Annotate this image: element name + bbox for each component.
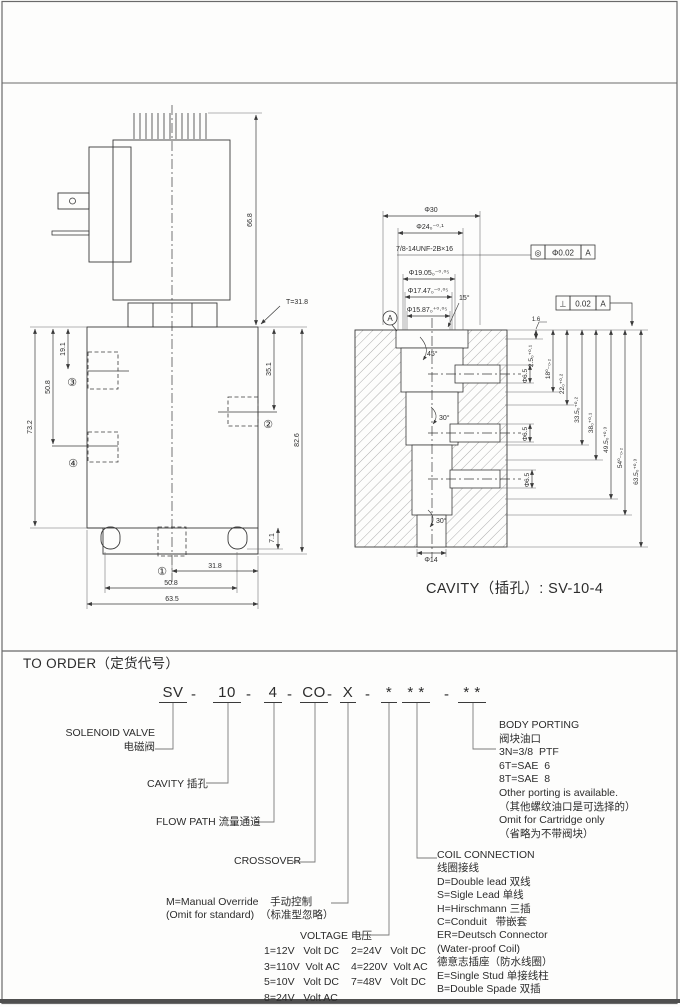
coil-connection-line: ER=Deutsch Connector [437,929,553,942]
drawing-linework: 66.8 T=31.8 73.2 50.8 19.1 35.1 82.6 7.1… [0,0,680,1007]
dim-depth-33-5: 33.5₀⁺⁰·² [574,396,581,423]
body-porting-line: （其他螺纹油口是可选择的） [499,801,636,815]
dim-bottom-63-5: 63.5 [165,596,179,603]
body-porting-line: 阀块油口 [499,733,636,747]
datasheet-page: 66.8 T=31.8 73.2 50.8 19.1 35.1 82.6 7.1… [0,0,680,1007]
body-porting-block: BODY PORTING 阀块油口 3N=3/8 PTF 6T=SAE 6 8T… [499,719,636,841]
datum-a-balloon: A [387,314,393,323]
voltage-option: 8=24V Volt AC [264,991,351,1006]
dim-depth-49-5: 49.5₀⁺⁰·³ [603,426,610,453]
voltage-option: 4=220V Volt AC [351,960,438,975]
coil-connection-line: B=Double Spade 双插 [437,983,553,996]
voltage-option: 3=110V Volt AC [264,960,351,975]
cavity-drawing [355,211,648,558]
dim-bottom-31-8: 31.8 [208,563,222,570]
coil-connection-line: H=Hirschmann 三插 [437,903,553,916]
outline-dimension-texts: 66.8 T=31.8 73.2 50.8 19.1 35.1 82.6 7.1… [27,213,308,603]
dim-depth-38: 38₀⁺⁰·¹ [588,412,595,433]
flow-path-label: FLOW PATH 流量通道 [156,814,261,829]
page-frame [0,2,680,1004]
cavity-caption: CAVITY（插孔）: SV-10-4 [426,577,603,598]
coil-connection-line: 德意志插座（防水线圈） [437,956,553,969]
code-token-crossover: CO [300,684,328,703]
code-dash: - [287,686,292,703]
cavity-code-label: CAVITY 插孔 [147,776,208,791]
voltage-options: 1=12V Volt DC2=24V Volt DC 3=110V Volt A… [264,943,442,1005]
port-2-balloon: ② [263,419,273,431]
dim-d15-87: Φ15.87₀⁺⁰·⁰⁵ [407,306,448,314]
dim-depth-18: 18⁰₋₀.₂ [545,358,552,379]
dim-depth-2-5: 2.5₀⁺⁰·¹ [528,344,535,367]
concentricity-datum: A [585,249,591,258]
code-token-series: SV [159,684,187,703]
outline-drawing [30,105,307,609]
dim-angle30-lower: 30° [436,517,447,525]
surface-finish-value: 1.6 [532,317,541,323]
port-1-balloon: ① [157,566,167,578]
dim-angle15: 15° [459,294,470,302]
coil-connection-block: COIL CONNECTION 线圈接线 D=Double lead 双线 S=… [437,849,553,996]
dim-left-50-8: 50.8 [45,380,52,394]
dim-angle45: 45° [427,350,438,358]
code-dash: - [246,686,251,703]
solenoid-valve-label-en: SOLENOID VALVE [60,727,155,739]
dim-d6-5-port1: Φ6.5 [522,369,529,384]
code-dash: - [327,686,332,703]
body-porting-title: BODY PORTING [499,719,636,733]
to-order-title: TO ORDER（定货代号） [23,652,179,672]
body-porting-line: 3N=3/8 PTF [499,746,636,760]
dim-total-height: 82.6 [294,433,301,447]
coil-connection-line: D=Double lead 双线 [437,876,553,889]
dim-d6-5-port2: Φ6.5 [522,427,529,442]
body-porting-line: 6T=SAE 6 [499,760,636,774]
coil-connection-title: COIL CONNECTION [437,849,553,862]
code-token-cavity: 10 [213,684,241,703]
dim-d19-05: Φ19.05₀⁻⁰·⁰⁵ [409,269,450,277]
dim-d6-5-port3: Φ6.5 [524,473,531,488]
dim-angle30-upper: 30° [439,414,450,422]
code-token-flow-path: 4 [264,684,282,703]
voltage-option: 5=10V Volt DC [264,975,351,990]
body-porting-line: （省略为不带阀块） [499,828,636,842]
voltage-option: 1=12V Volt DC [264,944,351,959]
dim-slot-depth: 7.1 [269,533,276,543]
coil-connection-line: C=Conduit 带嵌套 [437,916,553,929]
crossover-label: CROSSOVER [234,855,301,867]
dim-body-height: 73.2 [27,420,34,434]
code-token-manual-override: X [340,684,356,703]
code-token-voltage: * [381,684,397,703]
dim-d30: Φ30 [424,207,437,214]
code-token-coil-connection: * * [402,684,430,703]
body-porting-line: Other porting is available. [499,787,636,801]
voltage-label: VOLTAGE 电压 [300,928,372,943]
dim-port2-depth: 35.1 [266,362,273,376]
code-token-body-porting: * * [458,684,486,703]
concentricity-symbol-icon: ◎ [535,249,542,258]
coil-connection-line: (Water-proof Coil) [437,943,553,956]
dim-port3-depth: 19.1 [60,342,67,356]
perpendicularity-tolerance: 0.02 [575,300,591,309]
body-porting-line: 8T=SAE 8 [499,773,636,787]
code-dash: - [191,686,196,703]
dim-bottom-50-8: 50.8 [164,580,178,587]
coil-connection-line: E=Single Stud 单接线柱 [437,970,553,983]
voltage-option: 2=24V Volt DC [351,944,438,959]
coil-connection-line: S=Sigle Lead 单线 [437,889,553,902]
dim-d24: Φ24₀⁻⁰·¹ [416,223,444,231]
coil-connection-line: 线圈接线 [437,862,553,875]
dim-d17-47: Φ17.47₀⁻⁰·⁰⁵ [408,287,449,295]
dim-d14: Φ14 [424,557,437,564]
dim-depth-54: 54⁰₋₀.₂ [617,447,624,468]
solenoid-valve-label-cn: 电磁阀 [60,739,155,754]
concentricity-tolerance: Φ0.02 [552,249,575,258]
dim-thread-note: T=31.8 [286,299,308,306]
dim-depth-63-5: 63.5₀⁺⁰·³ [633,458,640,485]
solenoid-valve-label: SOLENOID VALVE 电磁阀 [60,727,155,754]
perpendicularity-symbol-icon: ⊥ [560,300,567,309]
code-dash: - [365,686,370,703]
dim-coil-height: 66.8 [247,213,254,227]
port-4-balloon: ④ [68,458,78,470]
perpendicularity-datum: A [600,300,606,309]
code-dash: - [444,686,449,703]
manual-override-label-line2: (Omit for standard) （标准型忽略） [166,907,333,922]
dim-thread: 7/8-14UNF-2B×16 [396,246,453,253]
dim-depth-22: 22₀⁺⁰·² [559,373,566,394]
port-3-balloon: ③ [67,377,77,389]
voltage-option: 7=48V Volt DC [351,975,438,990]
body-porting-line: Omit for Cartridge only [499,814,636,828]
